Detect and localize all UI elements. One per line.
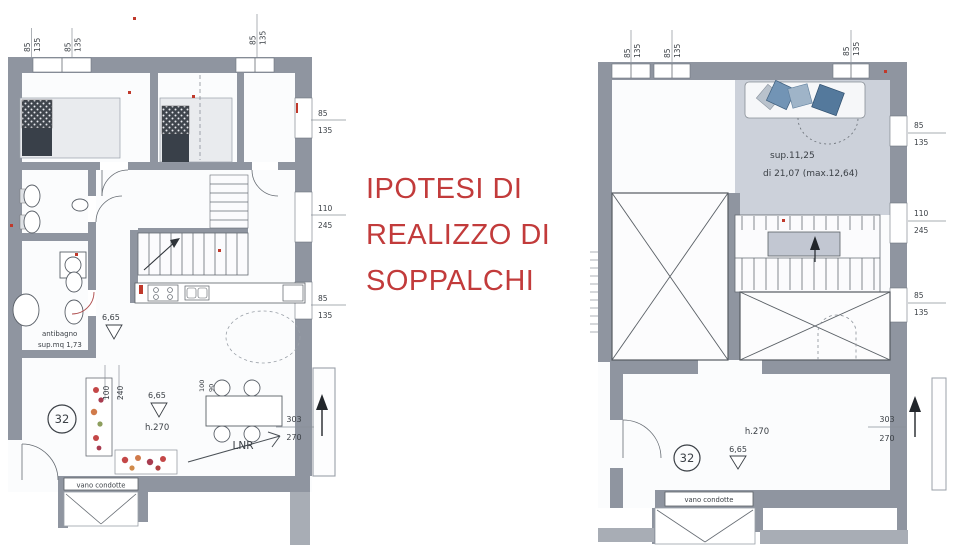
dim-label: 245 [318, 221, 333, 230]
stairs-icon [735, 215, 880, 292]
antibagno-area-label: sup.mq 1,73 [38, 341, 82, 349]
dim-label: 135 [259, 30, 268, 45]
radiator-ticks [590, 252, 598, 332]
annotation-line: REALIZZO DI [366, 212, 550, 258]
annotation-line: SOPPALCHI [366, 258, 550, 304]
annotation-text: IPOTESI DI REALIZZO DI SOPPALCHI [366, 166, 550, 304]
room-height-label: h.270 [745, 427, 769, 437]
bed-icon [20, 98, 120, 158]
balcony-strip [932, 378, 946, 490]
dim-label: 110 [318, 204, 333, 213]
void-opening [612, 193, 728, 360]
right-floorplan: 85 135 85 135 85 135 85 135 110 245 85 1… [590, 20, 966, 548]
north-arrow-icon [909, 396, 921, 437]
dim-label: 135 [852, 41, 861, 56]
unit-number-label: 32 [55, 412, 70, 426]
dim-label: 85 [663, 48, 672, 58]
level-marker-label: 6,65 [102, 313, 120, 322]
table-label: LNR [233, 440, 254, 452]
dim-label: 110 [914, 209, 929, 218]
left-floorplan: 85 135 85 135 85 135 85 135 110 245 85 1… [5, 3, 355, 550]
dim-label: 85 [23, 42, 32, 52]
dim-label: 85 [318, 109, 328, 118]
dim-label: 135 [633, 43, 642, 58]
mezzanine-area-label: sup.11,25 [770, 151, 815, 161]
dim-label: 245 [914, 226, 929, 235]
unit-number-label: 32 [680, 451, 695, 465]
dim-label: 85 [318, 294, 328, 303]
dim-label: 303 [286, 415, 301, 424]
dim-label: 135 [914, 138, 929, 147]
dim-label: 90 [208, 384, 216, 392]
room-height-label: h.270 [145, 423, 169, 433]
dim-label: 100 [198, 380, 206, 392]
bed-icon [160, 98, 232, 162]
mezzanine-area-label: di 21,07 (max.12,64) [763, 169, 858, 179]
duct-label: vano condotte [684, 496, 733, 504]
void-opening [740, 292, 890, 360]
dim-label: 135 [318, 126, 333, 135]
dim-label: 270 [286, 433, 301, 442]
dim-label: 85 [842, 46, 851, 56]
dim-label: 85 [623, 48, 632, 58]
level-marker-label: 6,65 [729, 445, 747, 454]
dim-label: 240 [116, 385, 125, 400]
dim-label: 303 [879, 415, 894, 424]
floorplan-document: 85 135 85 135 85 135 85 135 110 245 85 1… [0, 0, 966, 550]
dim-label: 135 [74, 37, 83, 52]
dim-label: 85 [914, 121, 924, 130]
antibagno-label: antibagno [42, 330, 77, 338]
dim-label: 85 [249, 35, 258, 45]
dim-label: 85 [64, 42, 73, 52]
flower-cabinet-icon [115, 450, 177, 474]
duct-label: vano condotte [76, 482, 125, 490]
dim-label: 135 [318, 311, 333, 320]
dim-label: 85 [914, 291, 924, 300]
dim-label: 135 [33, 37, 42, 52]
kitchen-counter-icon [135, 283, 305, 303]
annotation-line: IPOTESI DI [366, 166, 550, 212]
level-marker-label: 6,65 [148, 391, 166, 400]
dim-label: 270 [879, 434, 894, 443]
balcony-strip [313, 368, 335, 476]
dim-label: 135 [673, 43, 682, 58]
dim-label: 100 [102, 385, 111, 400]
dim-label: 135 [914, 308, 929, 317]
